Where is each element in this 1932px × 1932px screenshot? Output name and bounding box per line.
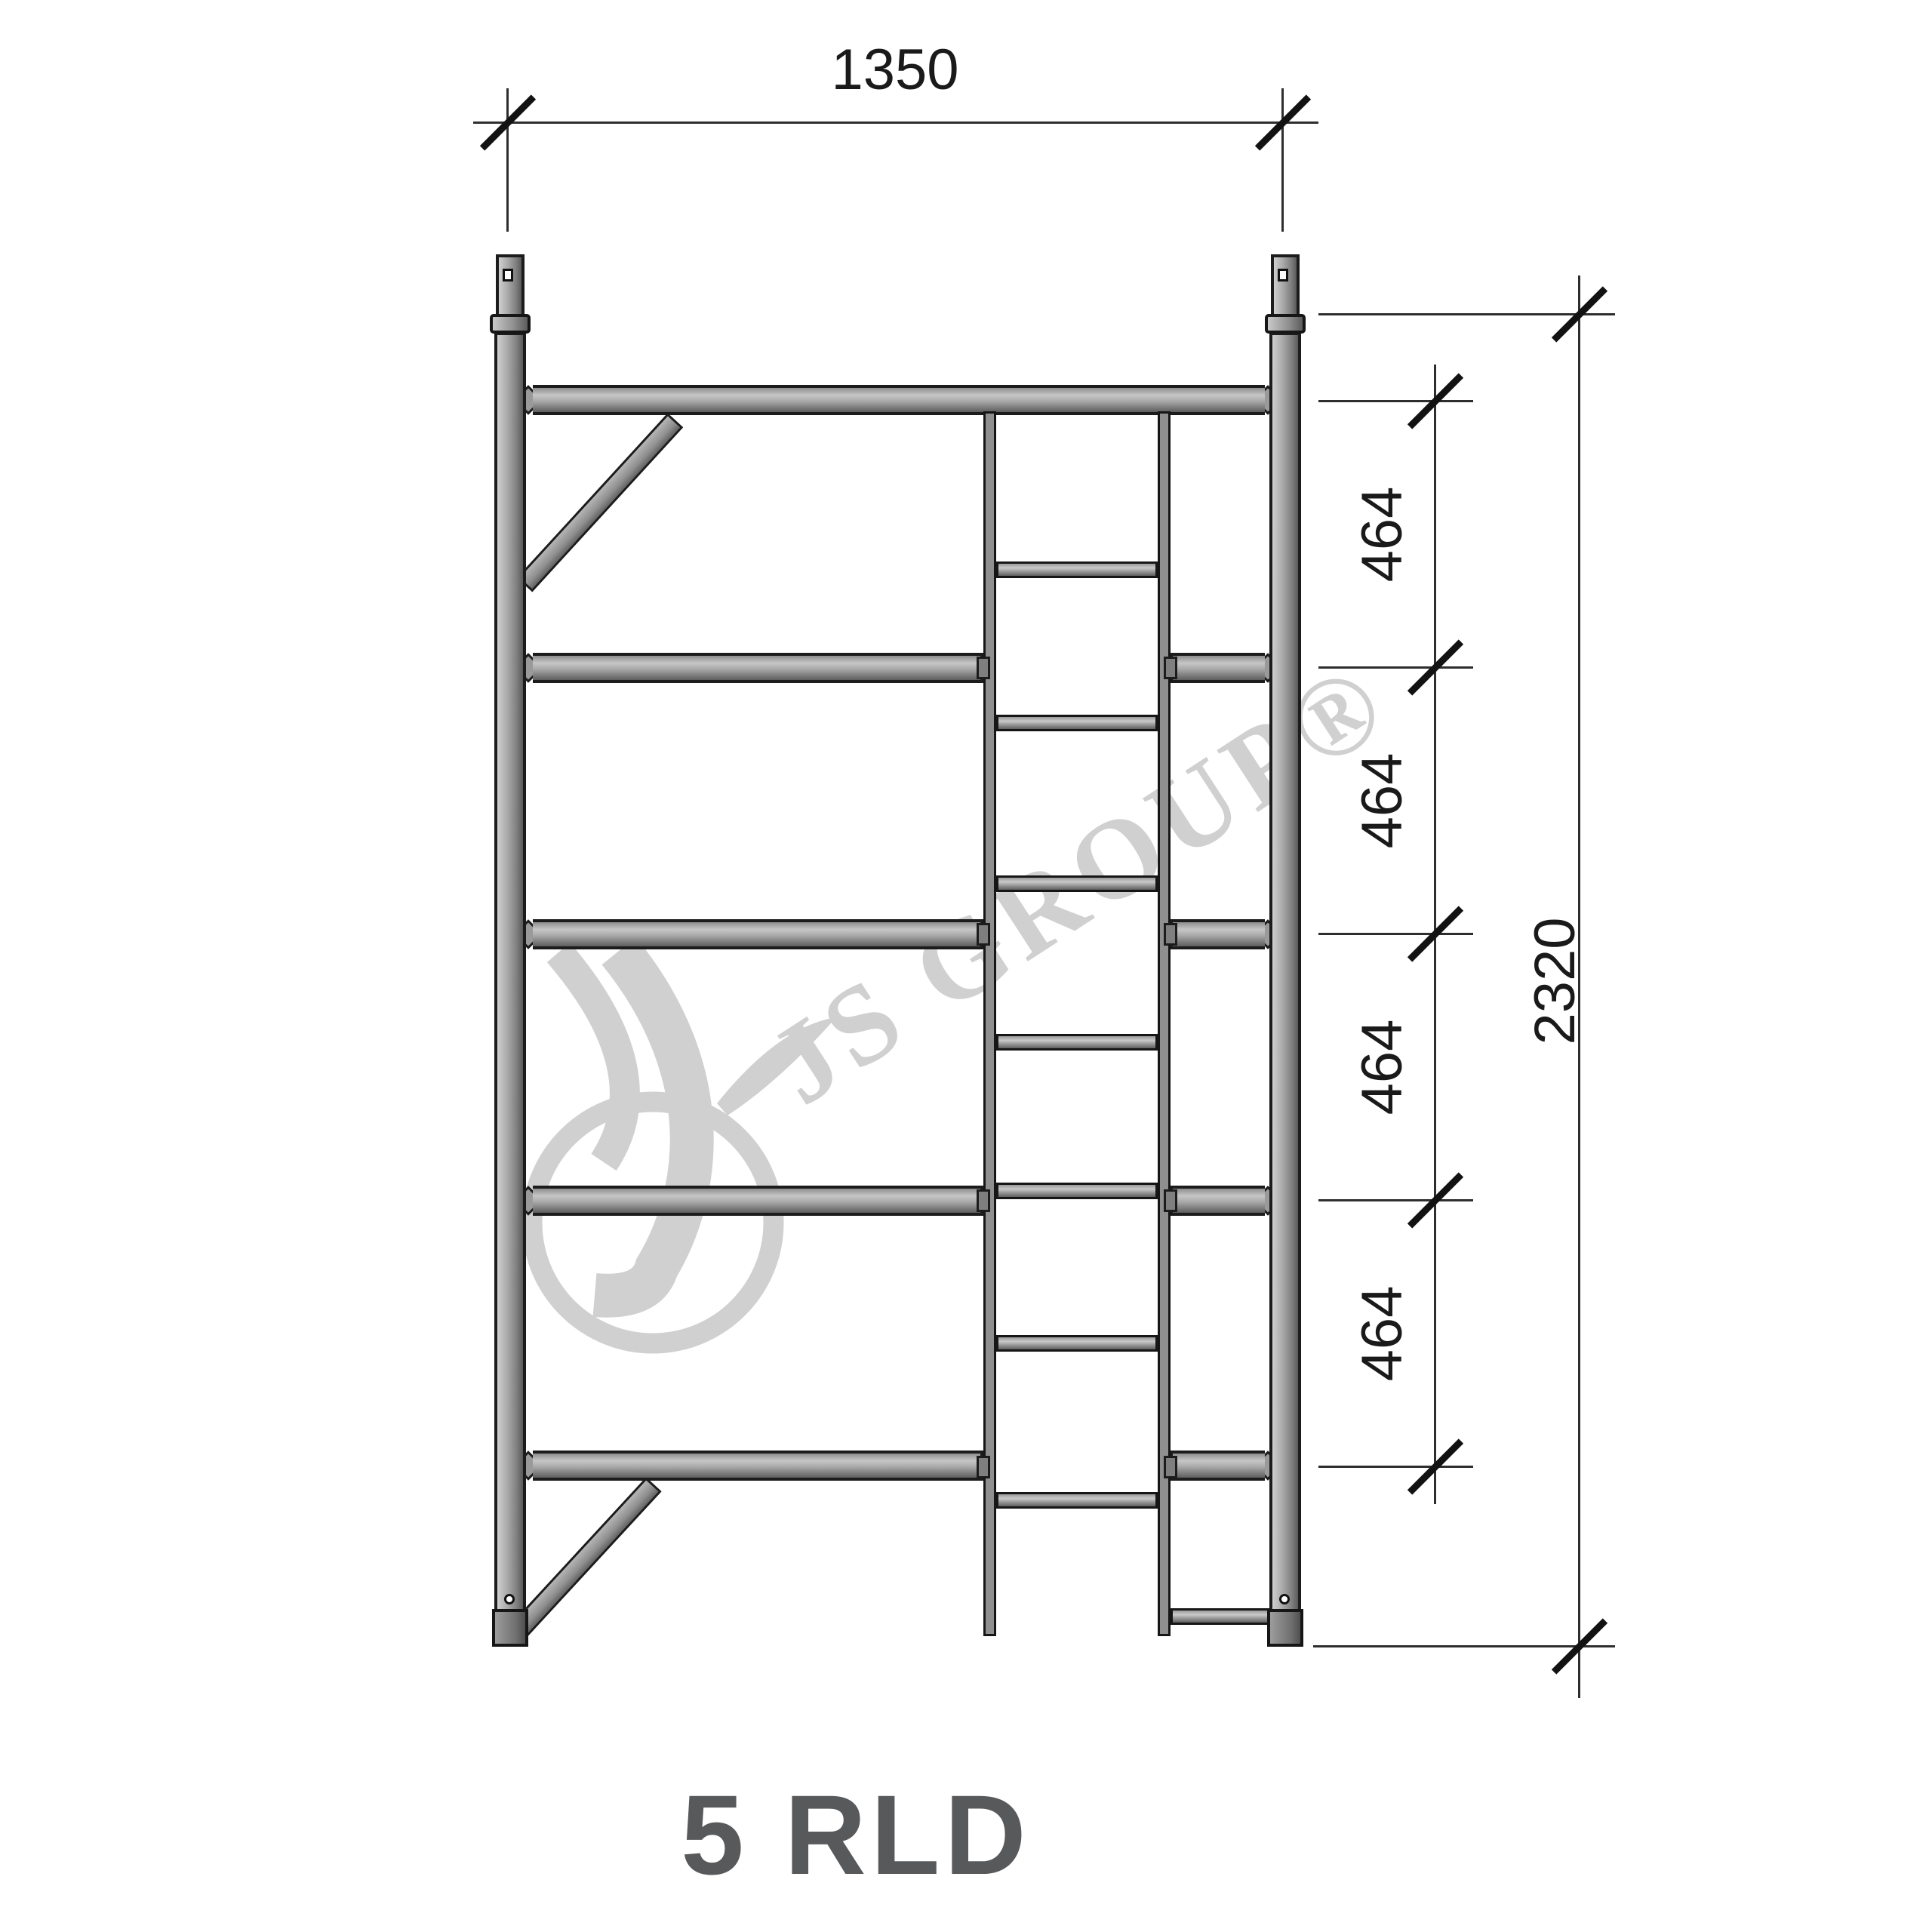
ladder-left-stile bbox=[983, 411, 996, 1636]
ladder-rung bbox=[996, 1034, 1158, 1051]
left-post-collar bbox=[490, 314, 531, 334]
top-diagonal-brace bbox=[517, 413, 684, 592]
rail-stile-tab bbox=[1164, 657, 1177, 679]
dim-label-overall-height: 2320 bbox=[1524, 868, 1585, 1094]
bottom-diagonal-brace bbox=[512, 1477, 662, 1637]
dim-label-segment: 464 bbox=[1352, 954, 1412, 1180]
dim-ext-line bbox=[1318, 933, 1473, 935]
ladder-rung bbox=[996, 1335, 1158, 1352]
right-post-hole bbox=[1279, 1594, 1290, 1604]
ladder-rung bbox=[996, 875, 1158, 892]
ladder-right-stile bbox=[1158, 411, 1171, 1636]
left-post-base bbox=[492, 1609, 528, 1647]
dim-label-segment: 464 bbox=[1352, 421, 1412, 648]
rail-stile-tab bbox=[1164, 1189, 1177, 1212]
dim-line-width bbox=[473, 122, 1318, 124]
left-post-hole bbox=[504, 1594, 515, 1604]
left-post bbox=[494, 332, 526, 1647]
ladder-bottom-right-rung bbox=[1171, 1608, 1269, 1625]
rail-stile-tab bbox=[1164, 1456, 1177, 1478]
dim-ext-line bbox=[506, 88, 509, 232]
rail-stile-tab bbox=[977, 1456, 990, 1478]
product-title: 5 RLD bbox=[554, 1770, 1158, 1900]
rail-3-right-stub bbox=[1170, 919, 1265, 949]
dim-ext-line bbox=[1318, 666, 1473, 669]
dim-ext-line bbox=[1318, 1466, 1473, 1468]
dim-ext-line bbox=[1313, 1645, 1615, 1647]
dim-ext-line bbox=[1281, 88, 1284, 232]
left-spigot-hole bbox=[503, 269, 513, 281]
rail-4-right-stub bbox=[1170, 1186, 1265, 1216]
ladder-rung bbox=[996, 715, 1158, 731]
ladder-rung bbox=[996, 1183, 1158, 1199]
rail-1-top bbox=[533, 385, 1265, 415]
rail-5-right-stub bbox=[1170, 1451, 1265, 1481]
right-post-base bbox=[1267, 1609, 1303, 1647]
rail-stile-tab bbox=[977, 657, 990, 679]
rail-2-left-stub bbox=[533, 653, 983, 683]
rail-stile-tab bbox=[1164, 923, 1177, 946]
dim-label-width: 1350 bbox=[744, 38, 1046, 101]
rail-stile-tab bbox=[977, 923, 990, 946]
rail-5-left-stub bbox=[533, 1451, 983, 1481]
technical-drawing-canvas: JS GROUP® bbox=[0, 0, 1932, 1932]
rail-3-left-stub bbox=[533, 919, 983, 949]
dim-ext-line bbox=[1318, 400, 1473, 402]
dim-label-segment: 464 bbox=[1352, 1220, 1412, 1447]
dim-ext-line bbox=[1318, 1199, 1473, 1201]
right-post-spigot bbox=[1271, 254, 1300, 318]
rail-2-right-stub bbox=[1170, 653, 1265, 683]
right-spigot-hole bbox=[1278, 269, 1288, 281]
dim-label-segment: 464 bbox=[1352, 688, 1412, 914]
left-post-spigot bbox=[496, 254, 525, 318]
rail-stile-tab bbox=[977, 1189, 990, 1212]
rail-4-left-stub bbox=[533, 1186, 983, 1216]
right-post-collar bbox=[1265, 314, 1306, 334]
dim-ext-line bbox=[1318, 313, 1615, 315]
right-post bbox=[1269, 332, 1301, 1647]
ladder-rung bbox=[996, 1492, 1158, 1509]
ladder-rung bbox=[996, 561, 1158, 578]
